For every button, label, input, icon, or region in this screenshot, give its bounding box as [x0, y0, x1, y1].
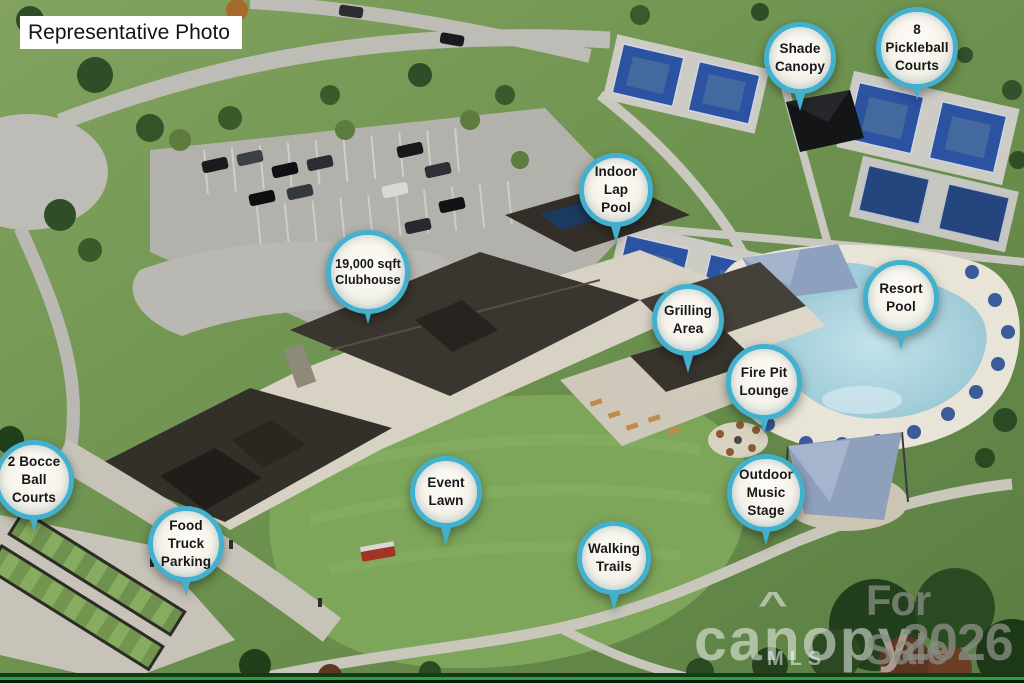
map-pin-event-lawn: Event Lawn	[410, 456, 482, 528]
map-pin-food-truck-parking: Food Truck Parking	[148, 506, 224, 582]
map-pin-outdoor-music-stage: Outdoor Music Stage	[727, 454, 805, 532]
pin-label: Indoor Lap Pool	[595, 163, 638, 216]
map-pin-walking-trails: Walking Trails	[577, 521, 651, 595]
pin-label: Walking Trails	[588, 540, 640, 576]
pin-circle: 8 Pickleball Courts	[876, 7, 958, 89]
map-pin-grilling-area: Grilling Area	[652, 284, 724, 356]
map-pin-fire-pit-lounge: Fire Pit Lounge	[726, 344, 802, 420]
pin-label: Event Lawn	[427, 474, 464, 510]
pin-circle: 2 Bocce Ball Courts	[0, 440, 74, 520]
pin-circle: Shade Canopy	[764, 22, 836, 94]
pin-circle: Event Lawn	[410, 456, 482, 528]
pin-label: Grilling Area	[664, 302, 712, 338]
map-pin-bocce-courts: 2 Bocce Ball Courts	[0, 440, 74, 520]
pin-label: 19,000 sqft Clubhouse	[335, 256, 401, 289]
map-pin-clubhouse: 19,000 sqft Clubhouse	[326, 230, 410, 314]
pin-circle: Outdoor Music Stage	[727, 454, 805, 532]
pin-circle: Resort Pool	[863, 260, 939, 336]
pin-circle: Walking Trails	[577, 521, 651, 595]
pin-circle: Fire Pit Lounge	[726, 344, 802, 420]
pin-label: 8 Pickleball Courts	[885, 21, 948, 74]
pin-label: Food Truck Parking	[161, 517, 211, 570]
pin-label: 2 Bocce Ball Courts	[8, 453, 60, 506]
pin-label: Outdoor Music Stage	[739, 466, 793, 519]
pin-circle: Indoor Lap Pool	[579, 153, 653, 227]
pin-circle: Grilling Area	[652, 284, 724, 356]
map-pin-shade-canopy: Shade Canopy	[764, 22, 836, 94]
pin-label: Fire Pit Lounge	[739, 364, 788, 400]
representative-photo-tag: Representative Photo	[20, 16, 242, 49]
listing-photo: { "overlay": { "photo_tag": "Representat…	[0, 0, 1024, 683]
map-pin-pickleball-courts: 8 Pickleball Courts	[876, 7, 958, 89]
map-pin-indoor-lap-pool: Indoor Lap Pool	[579, 153, 653, 227]
pin-label: Shade Canopy	[775, 40, 825, 76]
pin-circle: 19,000 sqft Clubhouse	[326, 230, 410, 314]
map-pin-resort-pool: Resort Pool	[863, 260, 939, 336]
pin-circle: Food Truck Parking	[148, 506, 224, 582]
pin-label: Resort Pool	[879, 280, 922, 316]
